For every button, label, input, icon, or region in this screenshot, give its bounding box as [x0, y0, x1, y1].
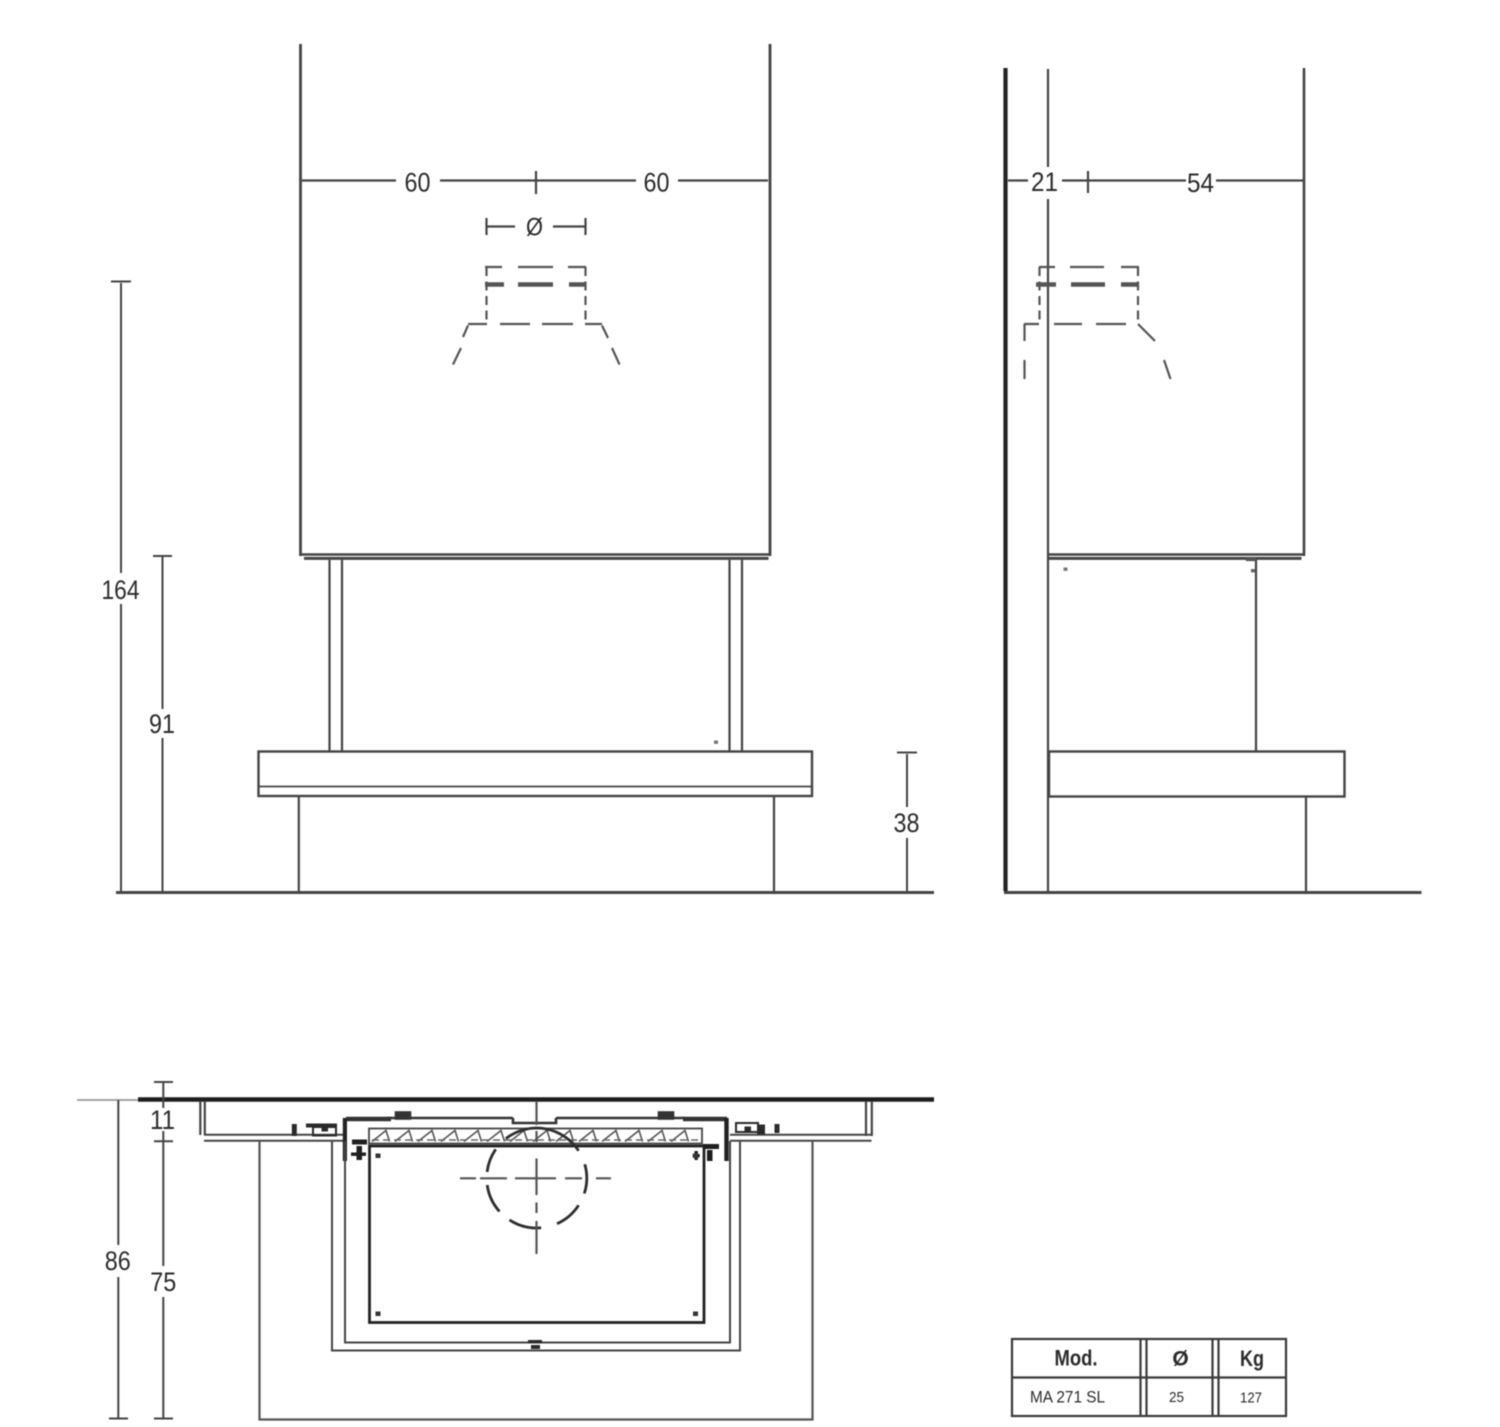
svg-text:75: 75 [150, 1267, 176, 1297]
svg-text:38: 38 [894, 808, 920, 838]
svg-text:54: 54 [1187, 168, 1214, 198]
svg-text:91: 91 [149, 709, 175, 739]
svg-text:127: 127 [1240, 1390, 1262, 1407]
svg-text:25: 25 [1169, 1389, 1184, 1406]
svg-text:164: 164 [102, 575, 140, 605]
svg-text:Ø: Ø [1172, 1348, 1188, 1371]
svg-text:86: 86 [105, 1246, 131, 1276]
svg-text:21: 21 [1031, 167, 1058, 197]
svg-text:Ø: Ø [526, 214, 543, 242]
svg-text:MA 271 SL: MA 271 SL [1030, 1388, 1105, 1407]
svg-text:Kg: Kg [1240, 1346, 1264, 1371]
svg-text:11: 11 [150, 1105, 175, 1135]
svg-text:60: 60 [405, 168, 431, 198]
svg-text:Mod.: Mod. [1055, 1346, 1098, 1371]
svg-text:60: 60 [644, 168, 670, 198]
